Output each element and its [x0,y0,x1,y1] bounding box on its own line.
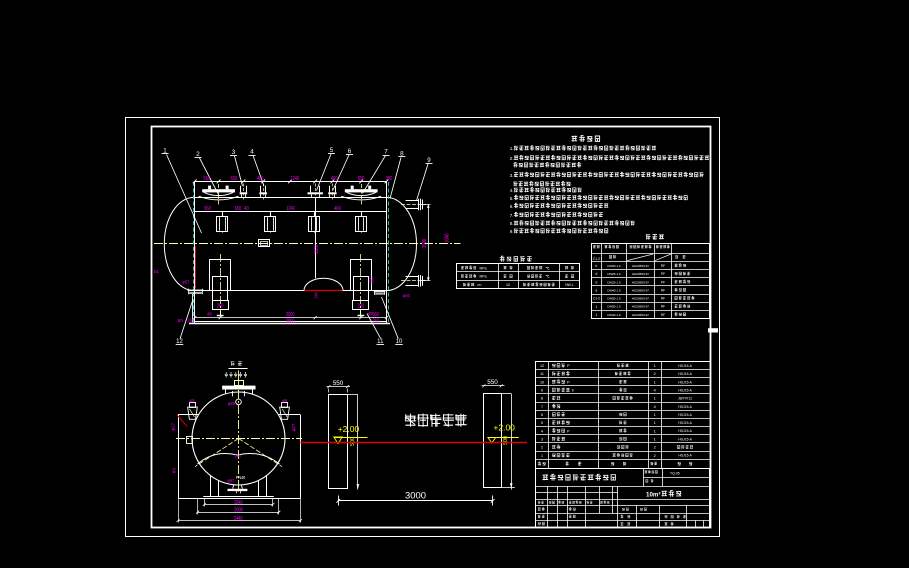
svg-text:a: a [596,289,598,293]
svg-text:1240: 1240 [291,176,300,182]
svg-text:HG20593-97: HG20593-97 [632,313,650,317]
svg-text:11: 11 [540,372,544,376]
svg-text:3800: 3800 [286,318,295,324]
svg-text:φ40: φ40 [403,293,410,298]
svg-text:60: 60 [172,468,178,473]
svg-text:HGJ15-A: HGJ15-A [678,421,692,425]
svg-text:φ6: φ6 [282,398,288,403]
svg-text:560: 560 [372,312,379,318]
svg-text:500: 500 [350,437,356,446]
svg-text:10m³: 10m³ [646,492,660,499]
svg-text:50: 50 [178,318,183,323]
svg-text:1: 1 [596,313,598,317]
svg-text:7: 7 [384,148,388,155]
svg-text:MPa: MPa [480,275,487,279]
svg-text:5.: 5. [510,196,514,201]
svg-text:φ27: φ27 [170,423,176,431]
svg-text:6: 6 [348,148,352,155]
svg-text:1240: 1240 [286,206,295,212]
svg-text:HG20593-97: HG20593-97 [632,264,650,268]
svg-text:1: 1 [596,305,598,309]
svg-text:RF: RF [661,313,665,317]
svg-text:MPa: MPa [480,266,487,270]
svg-text:2000: 2000 [286,312,295,318]
svg-text:10: 10 [506,283,510,287]
svg-text:1: 1 [654,364,656,368]
svg-text:5: 5 [541,421,543,425]
svg-text:2: 2 [654,446,656,450]
svg-text:HG20593-97: HG20593-97 [632,288,650,292]
svg-text:1: 1 [654,397,656,401]
svg-text:7.: 7. [510,213,514,218]
svg-text:240: 240 [234,454,241,460]
svg-text:550: 550 [333,381,344,387]
svg-text:b1: b1 [154,269,160,274]
svg-text:1: 1 [654,438,656,442]
svg-text:650: 650 [235,206,242,212]
svg-text:℃: ℃ [546,266,550,270]
svg-text:2: 2 [654,372,656,376]
svg-text:6.: 6. [510,204,514,209]
svg-text:4: 4 [250,148,254,155]
svg-text:HGJ15-A: HGJ15-A [678,405,692,409]
svg-text:1.: 1. [510,146,514,151]
svg-text:φ89: φ89 [228,401,235,407]
svg-text:4: 4 [654,389,656,393]
svg-text:460: 460 [334,206,341,212]
svg-text:HGJ15-A: HGJ15-A [678,413,692,417]
svg-text:260: 260 [358,304,365,310]
svg-text:DN40-1.0: DN40-1.0 [607,264,621,268]
svg-text:3000: 3000 [405,490,426,500]
svg-text:PF: PF [661,280,665,284]
svg-text:RF: RF [661,264,665,268]
svg-text:DN25-1.0: DN25-1.0 [607,272,621,276]
svg-text:560: 560 [204,206,211,212]
svg-text:4: 4 [654,405,656,409]
svg-text:260: 260 [188,319,195,325]
svg-text:2: 2 [654,454,656,458]
svg-text:8: 8 [541,397,543,401]
svg-text:b: b [572,389,574,393]
svg-text:NW-L: NW-L [565,283,574,287]
svg-text:3: 3 [541,438,543,442]
svg-text:550: 550 [487,380,498,386]
svg-text:d: d [596,272,598,276]
svg-text:1540: 1540 [234,500,243,506]
svg-text:C1-2: C1-2 [593,257,600,261]
svg-text:1: 1 [654,380,656,384]
svg-text:+2.00: +2.00 [338,424,360,434]
svg-text:HG20593-97: HG20593-97 [632,272,650,276]
svg-text:650: 650 [358,176,365,182]
svg-text:2.: 2. [510,156,514,161]
svg-text:9: 9 [541,389,543,393]
svg-text:HG20593-97: HG20593-97 [632,297,650,301]
svg-text:500: 500 [503,436,509,445]
svg-text:10: 10 [540,380,544,384]
svg-text:1500: 1500 [422,239,428,249]
svg-text:DN25-1.0: DN25-1.0 [607,280,621,284]
svg-text:650: 650 [231,176,238,182]
svg-text:HGJ15-A: HGJ15-A [678,437,692,441]
svg-text:HGJ15-A: HGJ15-A [678,389,692,393]
svg-text:8.: 8. [510,221,514,226]
svg-text:2440: 2440 [234,516,243,522]
svg-text:RF: RF [661,297,665,301]
svg-text:TQ-05: TQ-05 [670,472,680,476]
svg-text:DN50-1.0: DN50-1.0 [607,305,621,309]
svg-text:3.: 3. [510,173,514,178]
svg-text:DN50-1.0: DN50-1.0 [607,297,621,301]
svg-text:+2.00: +2.00 [493,423,515,433]
svg-text:HGJ15-A: HGJ15-A [678,372,692,376]
svg-text:φ57: φ57 [227,478,235,483]
svg-text:6: 6 [541,413,543,417]
svg-text:C1-2: C1-2 [593,297,600,301]
svg-text:9: 9 [427,157,431,164]
svg-text:φ6: φ6 [190,398,196,403]
svg-text:460: 460 [257,176,264,182]
svg-text:560: 560 [370,277,376,284]
svg-text:HG20593-97: HG20593-97 [632,280,650,284]
svg-text:PN40: PN40 [236,475,246,480]
svg-text:φ27: φ27 [291,423,297,431]
svg-text:RF: RF [661,305,665,309]
svg-text:HGJ15-A: HGJ15-A [678,380,692,384]
svg-text:b: b [596,264,598,268]
svg-text:12: 12 [540,364,544,368]
svg-text:1: 1 [654,413,656,417]
svg-text:560: 560 [204,176,211,182]
svg-text:φ57: φ57 [182,279,189,284]
svg-text:760: 760 [373,318,380,324]
svg-text:380: 380 [386,176,393,182]
svg-text:4.: 4. [510,188,514,193]
svg-text:RF: RF [661,288,665,292]
svg-text:9.: 9. [510,229,514,234]
svg-text:DN40-1.0: DN40-1.0 [607,313,621,317]
svg-text:460: 460 [331,176,338,182]
svg-text:JB/T4712: JB/T4712 [678,397,692,401]
svg-text:2000: 2000 [234,508,243,514]
svg-text:240: 240 [314,292,319,298]
svg-text:2: 2 [541,446,543,450]
svg-text:℃: ℃ [546,275,550,279]
svg-text:PF: PF [661,272,665,276]
svg-text:45: 45 [207,312,212,317]
svg-text:d: d [596,280,598,284]
svg-text:HGJ15-A: HGJ15-A [678,454,692,458]
svg-text:1600: 1600 [445,233,451,243]
svg-text:DN40-1.0: DN40-1.0 [607,288,621,292]
svg-text:1: 1 [654,429,656,433]
svg-text:HGJ15-A: HGJ15-A [678,364,692,368]
svg-text:4: 4 [541,429,543,433]
svg-text:1500: 1500 [314,245,320,254]
svg-text:HG20593-97: HG20593-97 [632,305,650,309]
svg-text:40: 40 [244,206,249,212]
svg-text:1: 1 [654,421,656,425]
svg-text:7: 7 [541,405,543,409]
svg-text:HGJ15-A: HGJ15-A [678,429,692,433]
svg-text:1: 1 [541,454,543,458]
